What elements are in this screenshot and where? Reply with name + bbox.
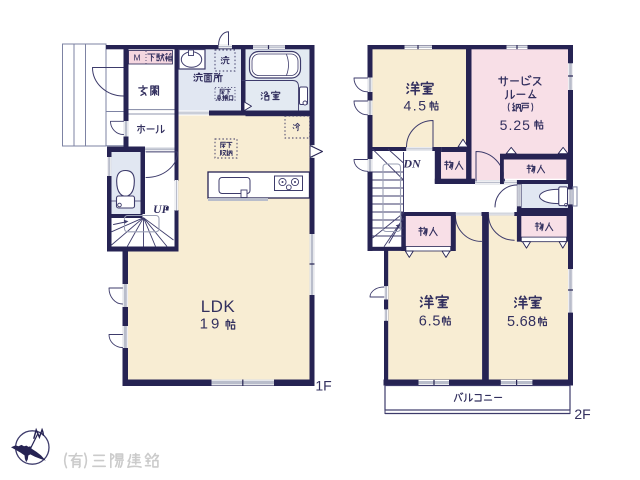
- svg-text:DN: DN: [402, 157, 422, 171]
- svg-text:5.68: 5.68: [507, 314, 536, 330]
- svg-text:4.5: 4.5: [404, 97, 428, 113]
- svg-text:LDK: LDK: [201, 297, 236, 316]
- svg-text:1F: 1F: [315, 378, 331, 394]
- svg-text:5.25: 5.25: [500, 117, 531, 133]
- svg-text:2F: 2F: [574, 406, 590, 422]
- svg-text:UP: UP: [153, 202, 170, 216]
- svg-text:6.5: 6.5: [419, 314, 442, 330]
- svg-text:19: 19: [200, 316, 223, 333]
- svg-text:M: M: [133, 52, 140, 62]
